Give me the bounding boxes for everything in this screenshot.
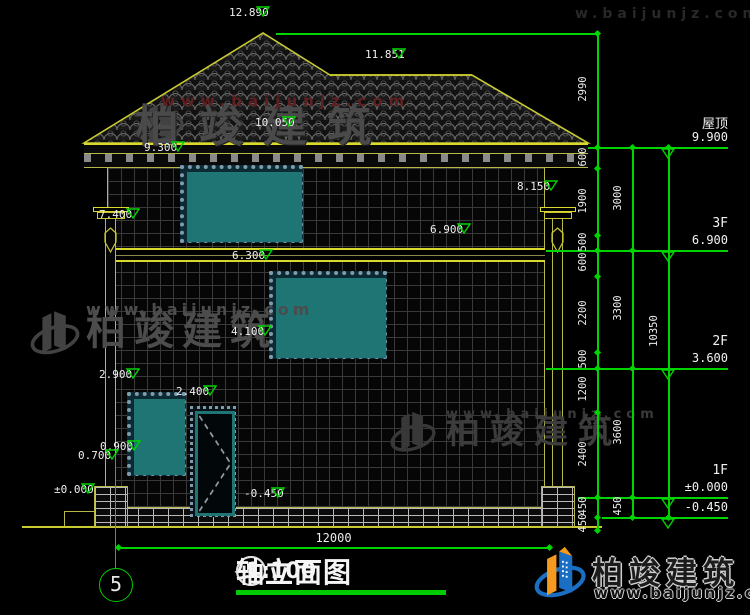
door-leaf [195, 411, 235, 516]
window-2f [269, 271, 387, 359]
drawing-canvas: 2990600190050060022005001200240045045030… [0, 0, 750, 615]
brand-logo-url: www.baijunjz.com [594, 584, 750, 602]
dentil-course [84, 153, 588, 162]
column-plinth [94, 486, 128, 527]
plinth-band [107, 507, 545, 527]
eave-band [84, 143, 588, 168]
entry-door [190, 406, 236, 517]
porch-column-right [540, 207, 578, 527]
column-plinth [541, 486, 575, 527]
floor-band-3f [107, 248, 545, 262]
column-pendant [551, 227, 564, 253]
porch-column-left [93, 207, 131, 527]
column-shaft [105, 219, 116, 486]
column-capital [97, 212, 125, 219]
roof-polygon [84, 33, 588, 143]
column-capital [544, 212, 572, 219]
axis-line-5 [115, 455, 116, 569]
column-shaft [552, 219, 563, 486]
title-underline [236, 590, 446, 595]
title-scale: 1:100 [246, 559, 316, 584]
column-pendant [104, 227, 117, 253]
watermark-partial: w.baijunjz.com [575, 6, 750, 22]
window-3f [180, 165, 303, 243]
axis-bubble-5: 5 [99, 568, 133, 602]
brand-logo-icon [534, 544, 590, 602]
window-1f [127, 392, 186, 476]
terrace-step [64, 511, 65, 527]
